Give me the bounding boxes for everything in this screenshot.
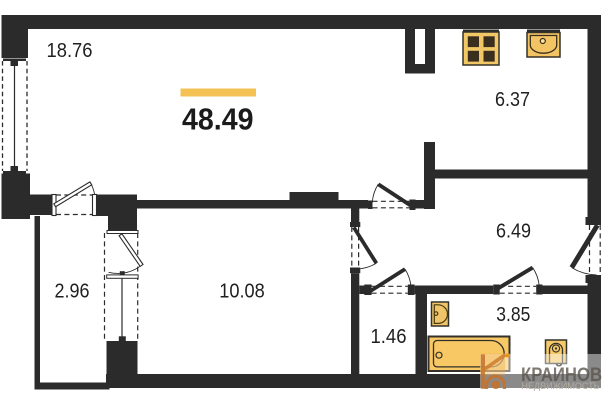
svg-text:2.96: 2.96 — [55, 280, 90, 303]
svg-text:3.85: 3.85 — [496, 303, 530, 326]
svg-text:1.46: 1.46 — [371, 325, 407, 348]
svg-text:НЕДВИЖИМОСТЬ: НЕДВИЖИМОСТЬ — [522, 381, 600, 391]
svg-text:6.49: 6.49 — [496, 220, 531, 243]
svg-text:48.49: 48.49 — [182, 102, 254, 137]
svg-text:6.37: 6.37 — [495, 88, 530, 111]
svg-text:10.08: 10.08 — [219, 280, 265, 303]
svg-text:18.76: 18.76 — [47, 39, 93, 62]
